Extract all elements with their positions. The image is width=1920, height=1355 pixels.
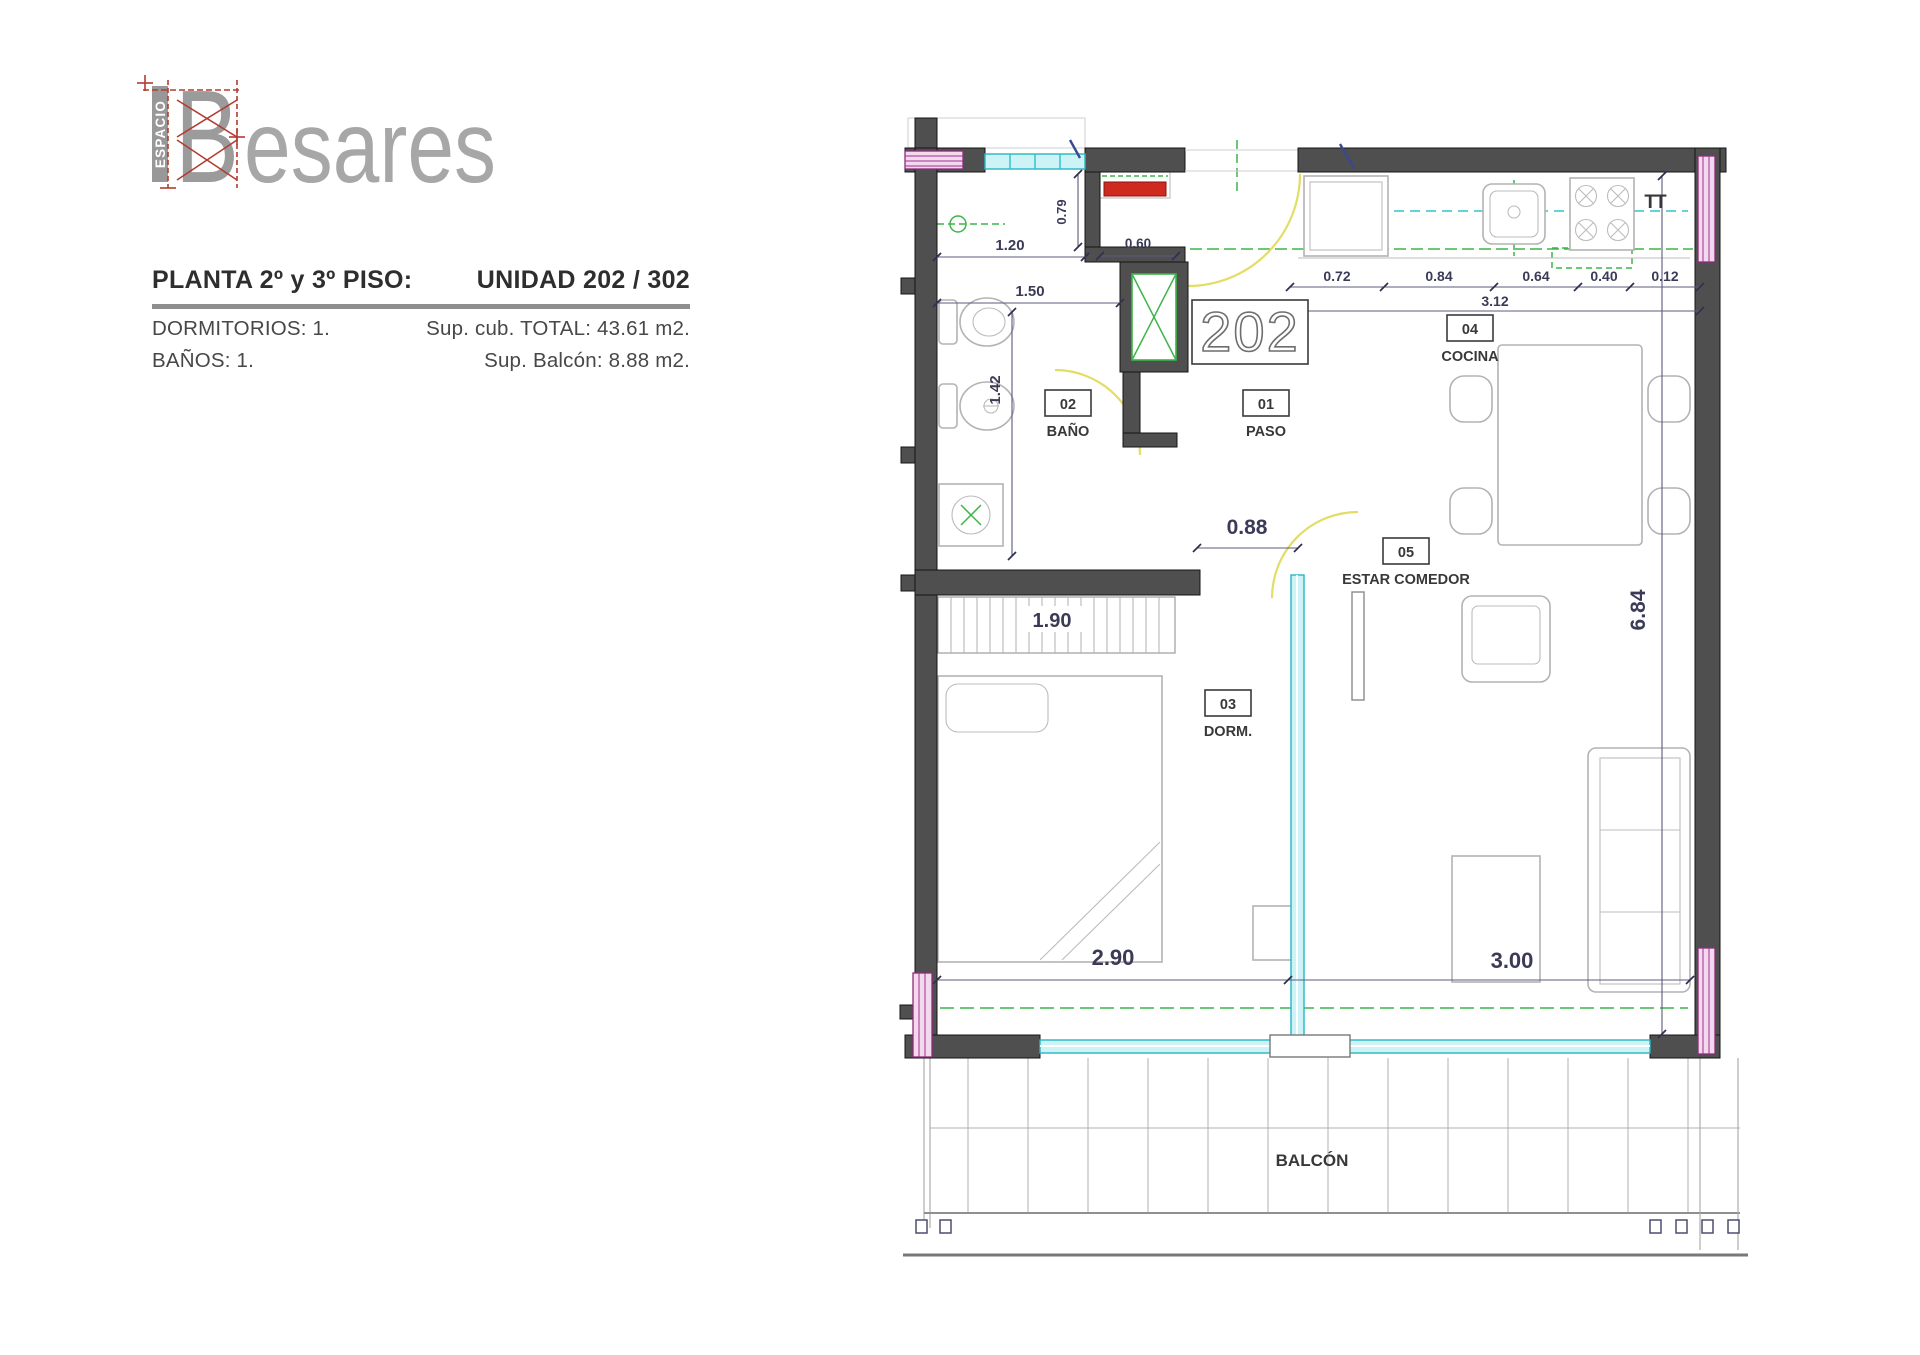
svg-text:BAÑO: BAÑO — [1047, 422, 1090, 440]
logo-espacio-text: ESPACIO — [153, 100, 168, 168]
wall-bath-dorm — [915, 570, 1200, 595]
dim-paso: 0.60 — [1125, 236, 1151, 251]
room-label-dorm: 03 DORM. — [1204, 690, 1252, 740]
wall-right — [1695, 148, 1720, 1058]
column-top-right — [1698, 156, 1715, 262]
dim-kitchen-1: 0.72 — [1323, 268, 1350, 284]
dim-bath-width: 1.50 — [1015, 283, 1044, 300]
title-row: PLANTA 2º y 3º PISO: UNIDAD 202 / 302 — [152, 266, 690, 295]
wall-top-kitchen — [1298, 148, 1726, 172]
balcony-area-label: Sup. Balcón: 8.88 m2. — [484, 349, 690, 373]
room-label-paso: 01 PASO — [1243, 390, 1289, 440]
logo: ESPACIO B esares — [120, 58, 540, 198]
window-balcony — [1040, 1035, 1650, 1057]
svg-text:01: 01 — [1258, 397, 1274, 413]
spec-row-2: BAÑOS: 1. Sup. Balcón: 8.88 m2. — [152, 349, 690, 373]
chair — [1648, 376, 1690, 422]
fridge — [1304, 176, 1388, 256]
page: ESPACIO B esares PLANTA 2º y 3º PISO: UN… — [0, 0, 1920, 1355]
bath-sink — [939, 484, 1003, 546]
total-area-label: Sup. cub. TOTAL: 43.61 m2. — [426, 317, 690, 341]
dim-kitchen-2: 0.84 — [1425, 268, 1452, 284]
air-shaft — [1132, 274, 1176, 360]
svg-text:PASO: PASO — [1246, 424, 1286, 440]
svg-text:DORM.: DORM. — [1204, 724, 1252, 740]
railing-feet — [916, 1220, 1739, 1233]
dim-living-height: 6.84 — [1627, 589, 1650, 630]
svg-text:03: 03 — [1220, 697, 1236, 713]
floor-plan: BALCÓN — [898, 112, 1750, 1292]
dim-closet-depth: 0.79 — [1054, 199, 1069, 224]
dim-wardrobe: 1.90 — [1033, 610, 1072, 632]
entry-door-swing — [1188, 174, 1300, 286]
spec-row-1: DORMITORIOS: 1. Sup. cub. TOTAL: 43.61 m… — [152, 317, 690, 341]
dim-kitchen-3: 0.64 — [1522, 268, 1549, 284]
kitchen-sink — [1483, 184, 1545, 244]
column-top-left — [905, 151, 963, 169]
dim-bath-height: 1.42 — [987, 375, 1004, 404]
water-heater — [1104, 182, 1166, 196]
balcony-label: BALCÓN — [1276, 1151, 1349, 1170]
title-rule — [152, 304, 690, 309]
armchair — [1462, 596, 1550, 682]
room-label-estar: 05 ESTAR COMEDOR — [1342, 538, 1470, 588]
svg-text:ESTAR COMEDOR: ESTAR COMEDOR — [1342, 572, 1470, 588]
dorm-door-leaf — [1352, 592, 1364, 700]
wall-closet-top — [1085, 148, 1185, 172]
side-table — [1253, 906, 1293, 960]
title-block: PLANTA 2º y 3º PISO: UNIDAD 202 / 302 DO… — [152, 266, 690, 373]
column-bottom-left — [913, 973, 932, 1057]
svg-text:05: 05 — [1398, 545, 1414, 561]
unit-number: 202 — [1200, 300, 1299, 363]
wall-left — [915, 148, 937, 1058]
dim-dorm-width: 2.90 — [1092, 945, 1135, 970]
dim-kitchen-total: 3.12 — [1481, 293, 1508, 309]
unit-label: UNIDAD 202 / 302 — [477, 266, 690, 295]
toilet — [939, 298, 1014, 346]
dim-kitchen-5: 0.12 — [1651, 268, 1678, 284]
bed — [938, 676, 1162, 962]
svg-text:COCINA: COCINA — [1441, 349, 1499, 365]
dim-door: 0.88 — [1227, 516, 1268, 539]
window-top — [985, 154, 1085, 169]
bathrooms-label: BAÑOS: 1. — [152, 349, 254, 373]
room-label-bano: 02 BAÑO — [1045, 390, 1091, 440]
dim-kitchen-4: 0.40 — [1590, 268, 1617, 284]
chair — [1450, 376, 1492, 422]
dining-table — [1498, 345, 1642, 545]
sofa — [1588, 748, 1690, 992]
column-bottom-right — [1698, 948, 1715, 1054]
chair — [1450, 488, 1492, 534]
dim-hall: 1.20 — [995, 237, 1024, 254]
dim-living-width: 3.00 — [1491, 948, 1534, 973]
bedrooms-label: DORMITORIOS: 1. — [152, 317, 330, 341]
tt-label: TT — [1644, 192, 1667, 213]
sliding-door-mullion — [1270, 1035, 1350, 1057]
floor-label: PLANTA 2º y 3º PISO: — [152, 266, 412, 295]
room-label-cocina: 04 COCINA — [1441, 315, 1499, 365]
logo-initial: B — [175, 63, 239, 198]
glass-partition — [1291, 575, 1304, 1040]
svg-text:04: 04 — [1462, 322, 1478, 338]
balcony: BALCÓN — [903, 1058, 1748, 1255]
logo-wordmark: esares — [244, 90, 496, 198]
stove — [1570, 178, 1634, 250]
svg-text:02: 02 — [1060, 397, 1076, 413]
chair — [1648, 488, 1690, 534]
